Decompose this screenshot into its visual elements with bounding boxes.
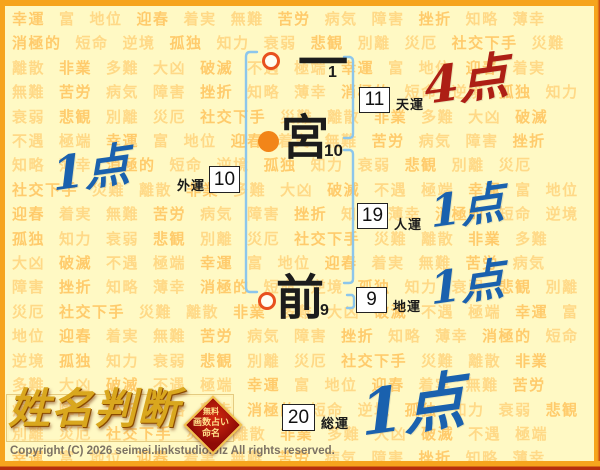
site-logo[interactable]: 姓名判断 (8, 388, 180, 430)
stroke-count-3: 9 (320, 302, 329, 320)
earth-luck-score: 1点 (429, 258, 506, 312)
badge-line-2: 画数占い (193, 417, 229, 428)
char-marker-2 (258, 131, 279, 152)
total-luck-score: 1点 (358, 369, 466, 446)
person-luck-score: 1点 (429, 181, 506, 235)
outer-luck-value-box: 10 (209, 166, 240, 193)
badge-line-3: 命名 (202, 428, 220, 439)
heaven-luck-score: 4点 (423, 50, 510, 112)
badge-text: 無料 画数占い 命名 (184, 396, 238, 450)
fortune-result-page: 幸運富地位迎春着実無難苦労病気障害挫折知略薄幸消極的短命逆境孤独知力衰弱悲観別離… (0, 0, 600, 470)
stroke-count-1: 1 (328, 64, 337, 82)
outer-luck-score: 1点 (51, 141, 131, 198)
name-char-2: 宮 (281, 114, 329, 162)
heaven-luck-value-box: 11 (359, 87, 390, 113)
earth-luck-value-box: 9 (356, 287, 387, 313)
name-char-1: 一 (298, 38, 348, 88)
name-char-3: 前 (276, 274, 324, 322)
person-luck-value-box: 19 (357, 203, 388, 229)
total-luck-value-box: 20 (282, 404, 315, 431)
free-naming-badge[interactable]: 無料 画数占い 命名 (184, 396, 238, 450)
person-luck-label: 人運 (394, 214, 422, 233)
char-marker-1 (262, 52, 280, 70)
heaven-luck-label: 天運 (396, 94, 424, 113)
border-right (594, 0, 600, 470)
char-marker-3 (258, 292, 276, 310)
border-left (0, 0, 5, 470)
copyright-text: Copyright (C) 2026 seimei.linkstudio.biz… (10, 445, 335, 457)
earth-luck-label: 地運 (393, 296, 421, 315)
outer-luck-label: 外運 (177, 175, 205, 194)
stroke-count-2: 10 (324, 141, 343, 161)
border-top (0, 0, 600, 6)
total-luck-label: 総運 (321, 413, 349, 432)
border-bottom (0, 461, 600, 470)
badge-line-1: 無料 (203, 407, 219, 417)
